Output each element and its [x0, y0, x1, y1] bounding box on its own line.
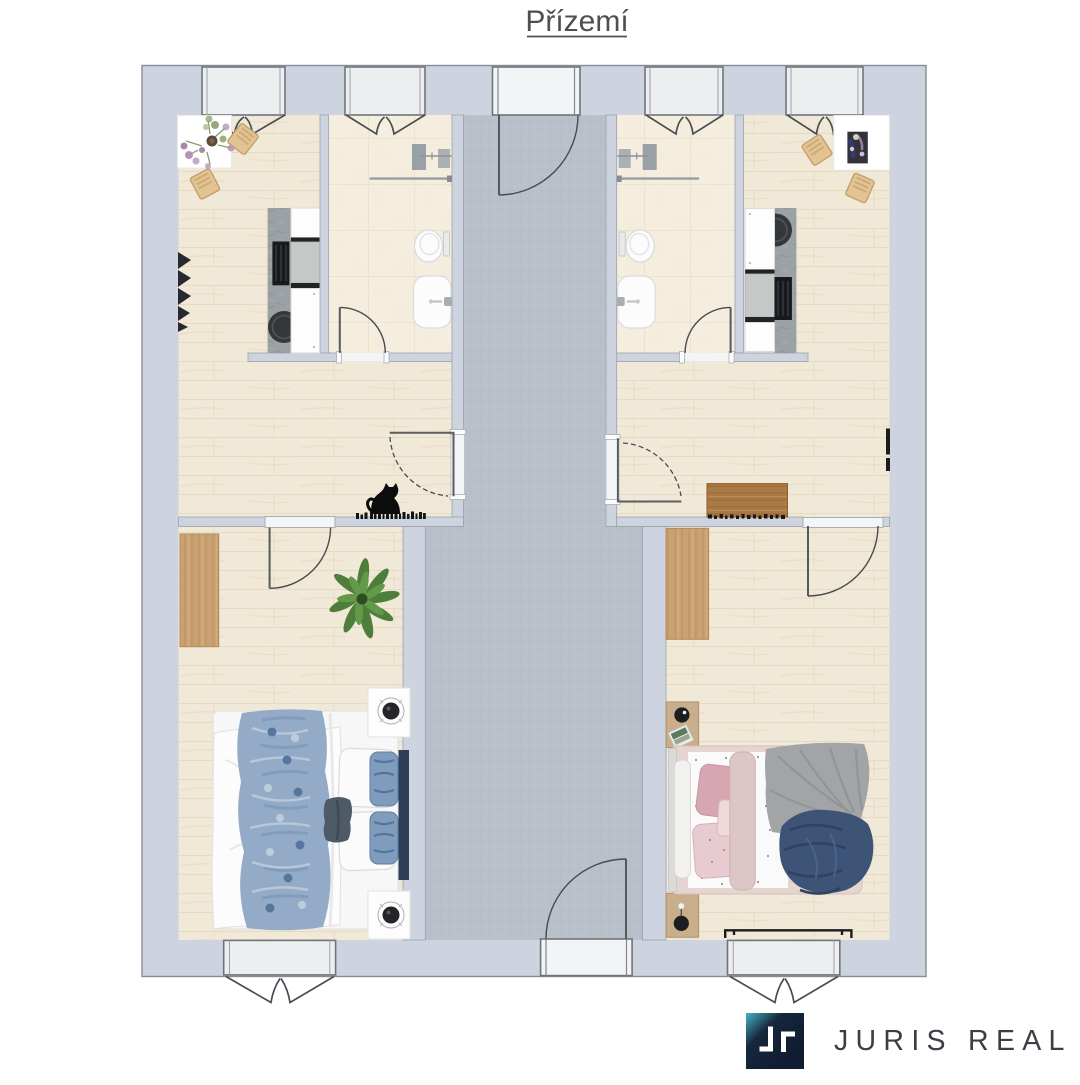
svg-text:JURIS REAL: JURIS REAL	[834, 1025, 1072, 1057]
svg-text:Přízemí: Přízemí	[525, 5, 629, 38]
